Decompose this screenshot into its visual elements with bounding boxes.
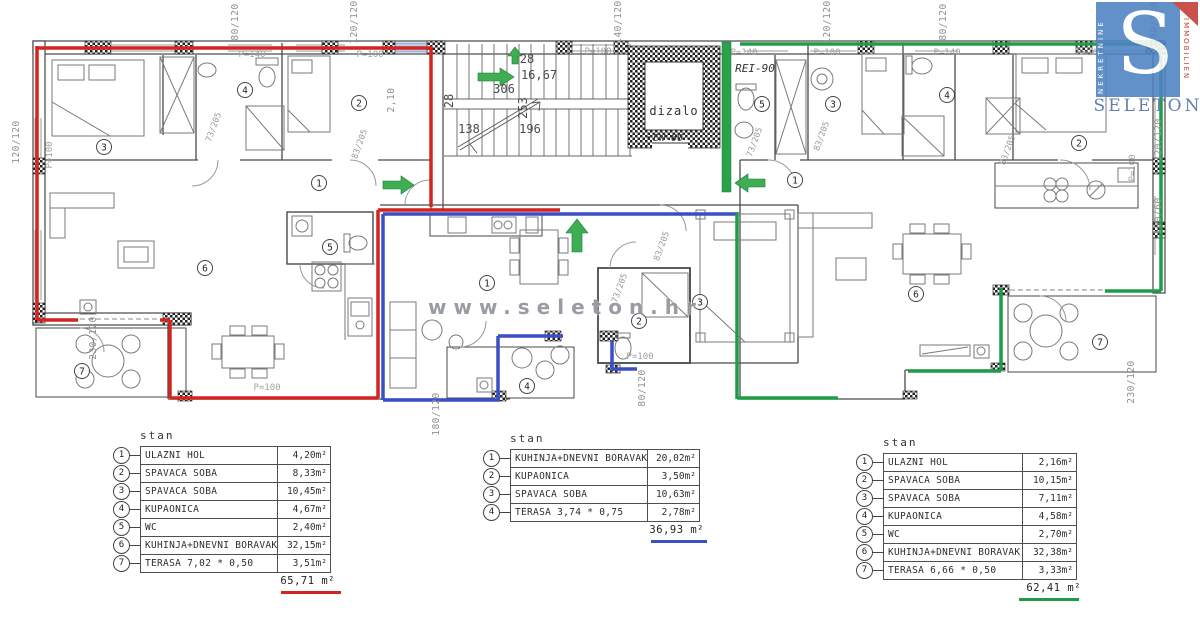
dimension-label: 230/120 <box>1126 360 1137 404</box>
room-name: WC <box>141 522 277 533</box>
door-size-label: 73/205 <box>745 126 765 158</box>
dimension-label: 180/120 <box>431 392 442 436</box>
watermark: www.seleton.hr <box>428 295 768 319</box>
room-area: 10,63m² <box>647 486 699 503</box>
parapet-label: P=100 <box>253 383 280 393</box>
door-size-label: 83/205 <box>998 134 1018 166</box>
table-row: 1ULAZNI HOL4,20m² <box>140 446 331 465</box>
room-number-badge: 7 <box>113 555 130 572</box>
room-area: 32,38m² <box>1022 544 1076 561</box>
table-row: 2SPAVAĆA SOBA10,15m² <box>883 471 1077 490</box>
room-marker-number: 3 <box>101 142 107 153</box>
room-name: WC <box>884 529 1022 540</box>
dimension-label: 196 <box>519 122 541 136</box>
room-area: 32,15m² <box>277 537 330 554</box>
room-area: 7,11m² <box>1022 490 1076 507</box>
room-marker-number: 5 <box>759 99 765 110</box>
room-name: KUPAONICA <box>511 471 647 482</box>
table-row: 6KUHINJA+DNEVNI BORAVAK32,38m² <box>883 543 1077 562</box>
door-size-label: 83/205 <box>652 230 672 262</box>
table-row: 1ULAZNI HOL2,16m² <box>883 453 1077 472</box>
hatched-wall-piers <box>33 41 1165 401</box>
total-underline <box>651 540 707 543</box>
door-arcs <box>80 160 1090 352</box>
dimension-label: 16,67 <box>521 68 557 82</box>
fire-wall-green-strip <box>722 42 731 192</box>
room-name: SPAVAĆA SOBA <box>511 489 647 500</box>
staircase <box>444 44 632 156</box>
total-underline <box>1019 598 1079 601</box>
table-total-area: 62,41 m² <box>1026 582 1081 594</box>
room-number-badge: 5 <box>113 519 130 536</box>
room-number-badge: 4 <box>856 508 873 525</box>
room-area: 3,50m² <box>647 468 699 485</box>
room-area: 20,02m² <box>647 450 699 467</box>
room-marker-number: 6 <box>913 289 919 300</box>
dimension-label: 28 <box>442 94 456 108</box>
dimension-label: 120/120 <box>11 120 22 164</box>
table-row: 2KUPAONICA3,50m² <box>510 467 700 486</box>
room-number-badge: 1 <box>856 454 873 471</box>
room-area: 2,16m² <box>1022 454 1076 471</box>
room-marker-number: 6 <box>202 263 208 274</box>
room-marker-number: 1 <box>792 175 798 186</box>
apartment-area-table: stan1ULAZNI HOL4,20m²2SPAVAĆA SOBA8,33m²… <box>140 447 331 591</box>
dimension-label: 100/60 <box>1153 197 1164 234</box>
logo-letter-s: S <box>1110 0 1180 98</box>
room-number-badge: 1 <box>483 450 500 467</box>
door-size-label: 73/205 <box>204 111 224 143</box>
room-name: TERASA 6,66 * 0,50 <box>884 565 1022 576</box>
parapet-label: P=100 <box>1128 154 1138 181</box>
room-marker-number: 4 <box>944 90 950 101</box>
table-row: 5WC2,70m² <box>883 525 1077 544</box>
room-name: SPAVAĆA SOBA <box>884 475 1022 486</box>
dimension-label: 120/120 <box>1153 118 1164 162</box>
table-row: 3SPAVAĆA SOBA10,63m² <box>510 485 700 504</box>
room-area: 3,51m² <box>277 555 330 572</box>
room-name: SPAVAĆA SOBA <box>141 486 277 497</box>
table-row: 7TERASA 6,66 * 0,503,33m² <box>883 561 1077 580</box>
dimension-label: 2,10 <box>386 88 397 113</box>
room-number-badge: 2 <box>856 472 873 489</box>
room-marker-number: 5 <box>327 242 333 253</box>
table-title: stan <box>510 432 545 445</box>
floorplan-page: dizalo EW-60 REI-90 80/120120/1202,10140… <box>0 0 1200 618</box>
dimension-label: 80/120 <box>637 369 648 406</box>
room-area: 4,58m² <box>1022 508 1076 525</box>
room-name: KUPAONICA <box>141 504 277 515</box>
dimension-label: 306 <box>493 82 515 96</box>
elevator-label: dizalo <box>649 104 698 118</box>
room-number-badge: 4 <box>483 504 500 521</box>
parapet-label: P=140 <box>933 48 960 58</box>
dimension-label: 120/120 <box>349 0 360 44</box>
table-row: 4TERASA 3,74 * 0,752,78m² <box>510 503 700 522</box>
table-row: 7TERASA 7,02 * 0,503,51m² <box>140 554 331 573</box>
room-area: 3,33m² <box>1022 562 1076 579</box>
room-area: 2,40m² <box>277 519 330 536</box>
room-number-badge: 6 <box>113 537 130 554</box>
room-name: KUHINJA+DNEVNI BORAVAK <box>884 547 1022 558</box>
room-area: 8,33m² <box>277 465 330 482</box>
room-area: 2,70m² <box>1022 526 1076 543</box>
parapet-label: P=100 <box>584 47 611 57</box>
room-area: 10,45m² <box>277 483 330 500</box>
table-row: 6KUHINJA+DNEVNI BORAVAK32,15m² <box>140 536 331 555</box>
room-number-badge: 2 <box>483 468 500 485</box>
room-marker-number: 4 <box>524 381 530 392</box>
room-number-badge: 5 <box>856 526 873 543</box>
dimension-label: 28 <box>520 52 534 66</box>
table-row: 4KUPAONICA4,58m² <box>883 507 1077 526</box>
room-number-badge: 3 <box>856 490 873 507</box>
room-name: ULAZNI HOL <box>884 457 1022 468</box>
table-row: 2SPAVAĆA SOBA8,33m² <box>140 464 331 483</box>
dimension-label: 138 <box>458 122 480 136</box>
apartment-area-table: stan1ULAZNI HOL2,16m²2SPAVAĆA SOBA10,15m… <box>883 454 1077 598</box>
room-number-markers: 342156712345341267 <box>75 83 1108 394</box>
room-number-badge: 7 <box>856 562 873 579</box>
room-marker-number: 7 <box>1097 337 1103 348</box>
room-number-badge: 3 <box>483 486 500 503</box>
door-size-label: 83/205 <box>812 120 832 152</box>
room-name: KUPAONICA <box>884 511 1022 522</box>
room-name: KUHINJA+DNEVNI BORAVAK <box>511 453 647 464</box>
table-row: 3SPAVAĆA SOBA10,45m² <box>140 482 331 501</box>
room-number-badge: 1 <box>113 447 130 464</box>
room-marker-number: 2 <box>356 98 362 109</box>
room-number-badge: 3 <box>113 483 130 500</box>
room-name: SPAVAĆA SOBA <box>884 493 1022 504</box>
room-marker-number: 3 <box>830 99 836 110</box>
logo-nekretnine-text: NEKRETNINE <box>1097 6 1105 94</box>
room-name: ULAZNI HOL <box>141 450 277 461</box>
table-row: 1KUHINJA+DNEVNI BORAVAK20,02m² <box>510 449 700 468</box>
room-name: TERASA 7,02 * 0,50 <box>141 558 277 569</box>
door-size-label: 83/205 <box>350 128 370 160</box>
logo-square: S NEKRETNINE <box>1096 2 1180 97</box>
fire-rating-label: REI-90 <box>735 62 775 75</box>
parapet-label: P=140 <box>730 48 757 58</box>
room-number-badge: 6 <box>856 544 873 561</box>
parapet-label: P=100 <box>45 141 55 168</box>
table-row: 3SPAVAĆA SOBA7,11m² <box>883 489 1077 508</box>
room-marker-number: 2 <box>1076 138 1082 149</box>
dimension-label: 140/120 <box>613 0 624 44</box>
room-area: 10,15m² <box>1022 472 1076 489</box>
room-marker-number: 7 <box>79 366 85 377</box>
room-boxes <box>36 163 1156 398</box>
dimension-label: 230/120 <box>88 316 99 360</box>
table-title: stan <box>883 436 918 449</box>
room-area: 2,78m² <box>647 504 699 521</box>
dimension-label: 80/120 <box>938 3 949 40</box>
room-name: TERASA 3,74 * 0,75 <box>511 507 647 518</box>
table-total-area: 65,71 m² <box>280 575 335 587</box>
table-row: 4KUPAONICA4,67m² <box>140 500 331 519</box>
elevator-code-label: EW-60 <box>653 133 683 144</box>
arrow-up-middle-apartment <box>566 219 588 252</box>
parapet-label: P=100 <box>356 50 383 60</box>
seleton-logo: S NEKRETNINE IMMOBILIEN SELETON <box>1096 2 1200 124</box>
room-area: 4,20m² <box>277 447 330 464</box>
parapet-label: P=100 <box>626 352 653 362</box>
room-name: SPAVAĆA SOBA <box>141 468 277 479</box>
dimension-label: 253 <box>516 97 530 119</box>
room-area: 4,67m² <box>277 501 330 518</box>
room-marker-number: 1 <box>316 178 322 189</box>
total-underline <box>281 591 341 594</box>
logo-immobilien-text: IMMOBILIEN <box>1182 18 1190 106</box>
room-name: KUHINJA+DNEVNI BORAVAK <box>141 540 277 551</box>
apartment-area-table: stan1KUHINJA+DNEVNI BORAVAK20,02m²2KUPAO… <box>510 450 700 540</box>
table-title: stan <box>140 429 175 442</box>
table-row: 5WC2,40m² <box>140 518 331 537</box>
room-number-badge: 2 <box>113 465 130 482</box>
room-marker-number: 4 <box>242 85 248 96</box>
parapet-label: P=100 <box>813 48 840 58</box>
room-marker-number: 1 <box>484 278 490 289</box>
parapet-label: P=140 <box>238 50 265 60</box>
table-total-area: 36,93 m² <box>649 524 704 536</box>
interior-walls <box>45 43 1153 399</box>
room-number-badge: 4 <box>113 501 130 518</box>
dimension-label: 120/120 <box>822 0 833 44</box>
logo-wordmark: SELETON <box>1092 96 1200 116</box>
dimension-label: 80/120 <box>230 3 241 40</box>
